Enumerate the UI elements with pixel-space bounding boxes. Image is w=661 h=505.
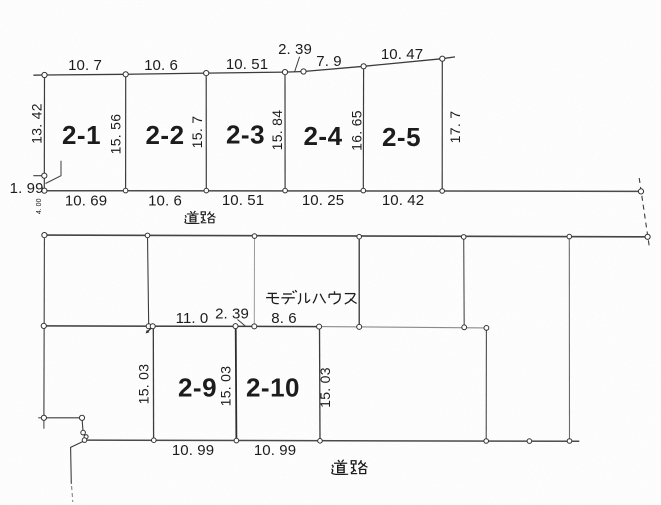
svg-text:2-9: 2-9 bbox=[178, 373, 217, 403]
svg-text:2-1: 2-1 bbox=[62, 120, 101, 150]
svg-text:13. 42: 13. 42 bbox=[29, 103, 45, 144]
svg-text:10. 25: 10. 25 bbox=[302, 192, 344, 209]
svg-text:2-4: 2-4 bbox=[303, 121, 342, 151]
svg-text:10. 69: 10. 69 bbox=[65, 193, 107, 210]
svg-text:10. 6: 10. 6 bbox=[148, 193, 182, 210]
svg-text:10. 51: 10. 51 bbox=[226, 56, 268, 73]
svg-text:2-5: 2-5 bbox=[382, 122, 421, 152]
svg-text:4. 00: 4. 00 bbox=[36, 198, 43, 214]
svg-text:15. 7: 15. 7 bbox=[189, 116, 205, 149]
svg-text:10. 6: 10. 6 bbox=[144, 57, 178, 74]
svg-text:2. 39: 2. 39 bbox=[278, 41, 312, 58]
svg-text:17. 7: 17. 7 bbox=[447, 111, 463, 144]
svg-text:10. 47: 10. 47 bbox=[381, 46, 423, 63]
svg-text:2. 39: 2. 39 bbox=[215, 306, 249, 323]
svg-text:15. 84: 15. 84 bbox=[269, 110, 285, 151]
svg-text:7. 9: 7. 9 bbox=[316, 53, 341, 70]
svg-text:16. 65: 16. 65 bbox=[349, 110, 365, 151]
svg-text:15. 03: 15. 03 bbox=[317, 367, 333, 408]
svg-text:10. 7: 10. 7 bbox=[68, 57, 102, 74]
svg-text:10. 51: 10. 51 bbox=[222, 192, 264, 209]
svg-text:10. 42: 10. 42 bbox=[382, 192, 424, 209]
svg-text:2-3: 2-3 bbox=[226, 120, 265, 150]
svg-text:2-2: 2-2 bbox=[145, 120, 184, 150]
svg-text:8. 6: 8. 6 bbox=[271, 310, 296, 327]
svg-text:11. 0: 11. 0 bbox=[176, 310, 209, 327]
svg-text:15. 03: 15. 03 bbox=[217, 366, 233, 407]
svg-text:1. 99: 1. 99 bbox=[10, 180, 44, 197]
svg-text:15. 56: 15. 56 bbox=[108, 114, 124, 155]
svg-text:2-10: 2-10 bbox=[246, 373, 300, 403]
svg-text:10. 99: 10. 99 bbox=[172, 442, 214, 459]
svg-text:15. 03: 15. 03 bbox=[136, 364, 152, 405]
svg-text:10. 99: 10. 99 bbox=[254, 442, 296, 459]
